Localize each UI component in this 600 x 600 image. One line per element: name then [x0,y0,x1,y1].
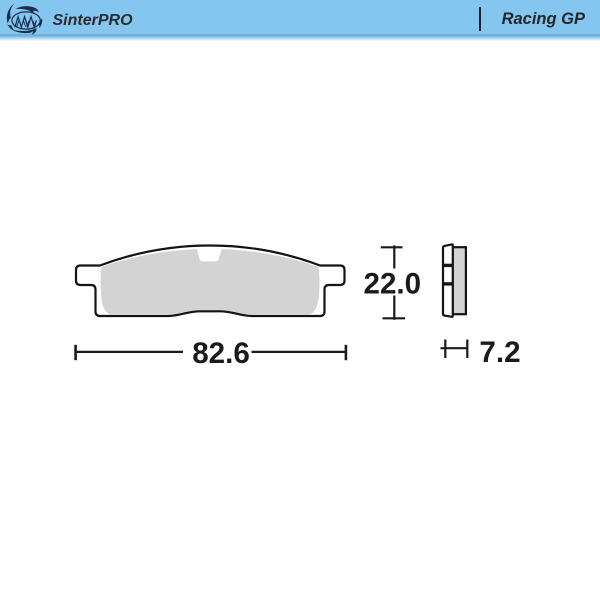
svg-text:7.2: 7.2 [479,336,520,369]
svg-text:82.6: 82.6 [192,337,250,370]
svg-text:22.0: 22.0 [363,268,421,301]
